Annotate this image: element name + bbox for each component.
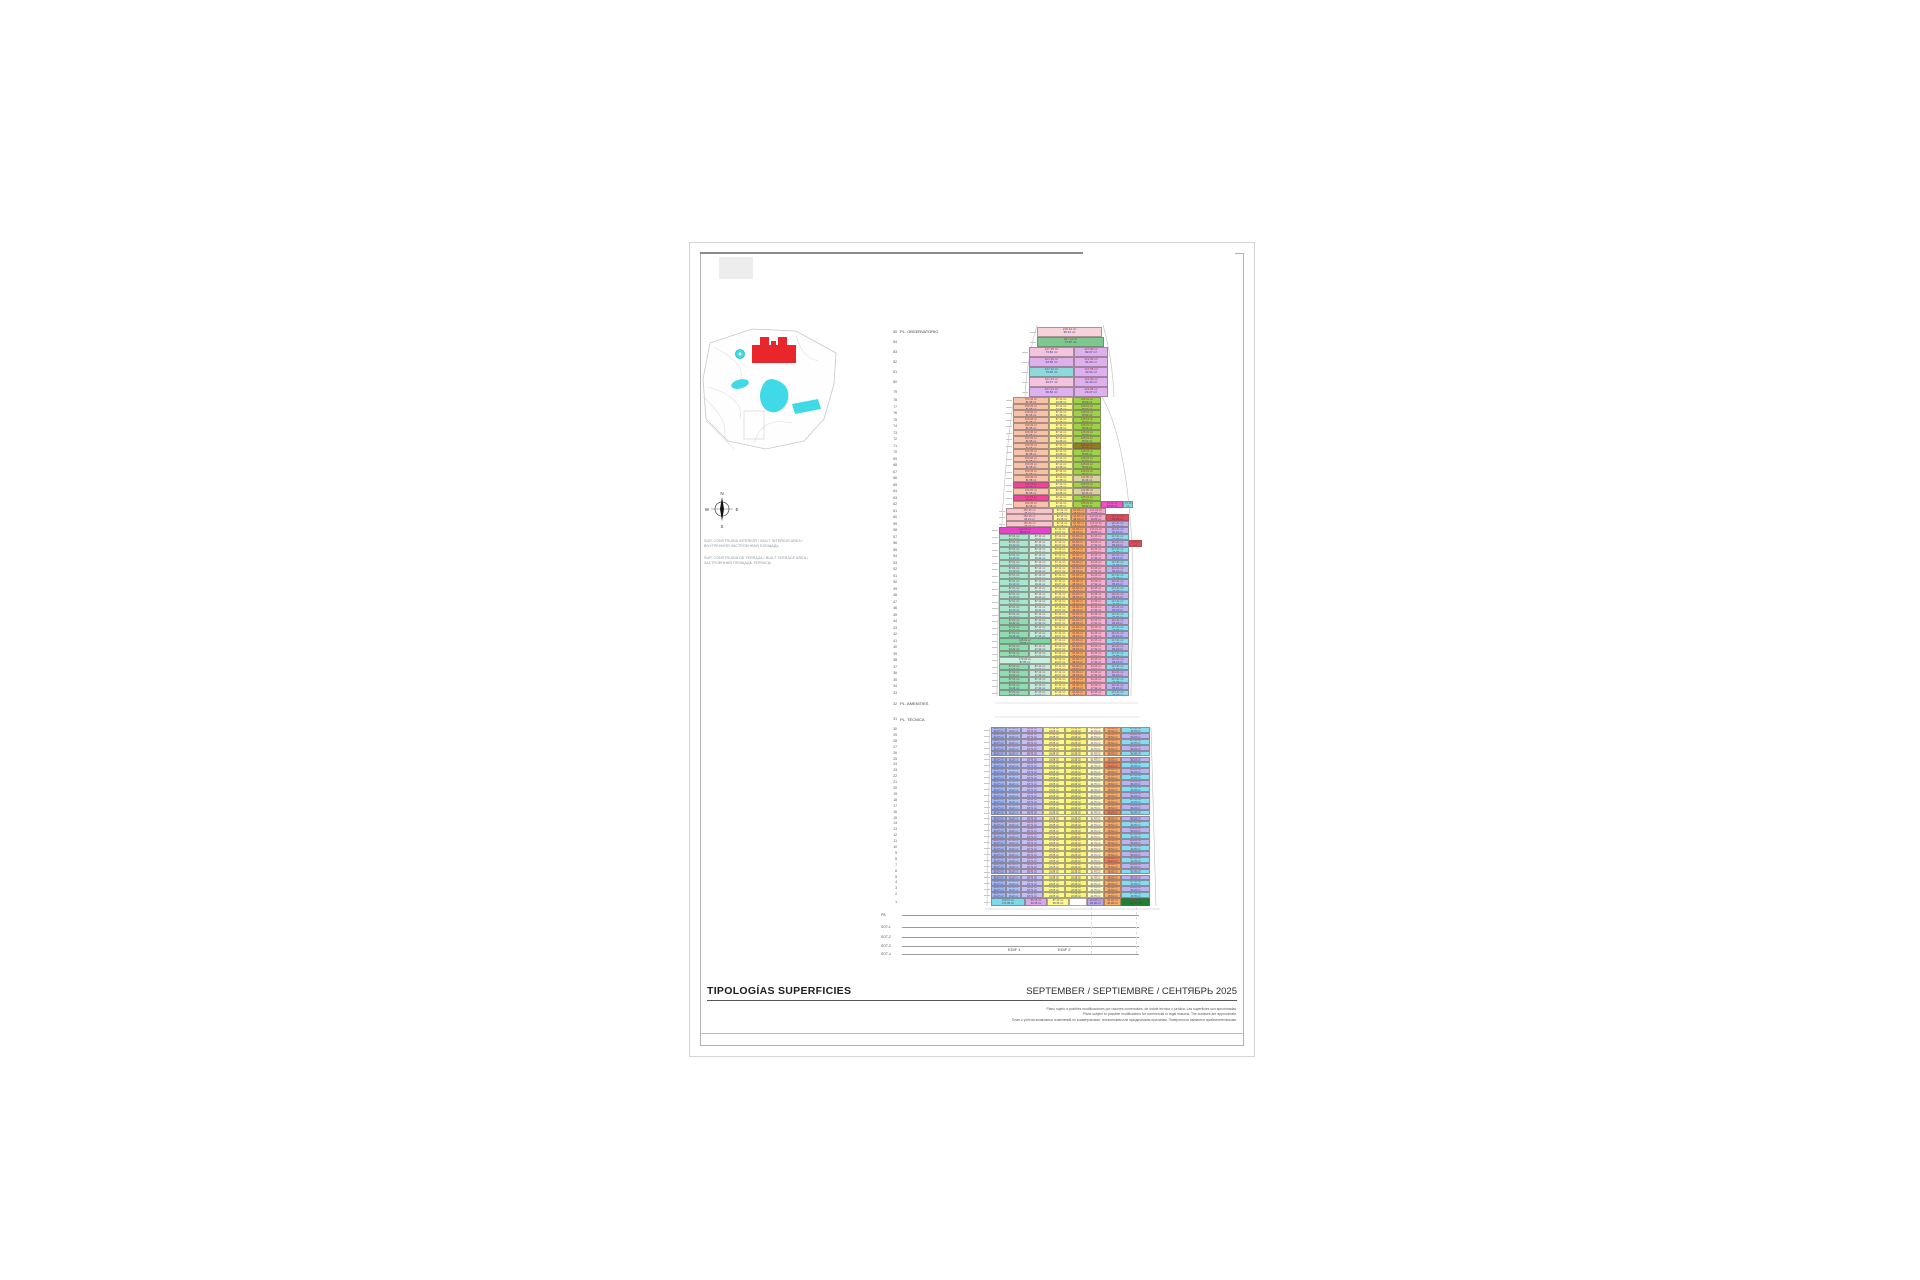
floor-tick-mark [1006, 433, 1012, 434]
floor-tick-mark [1006, 485, 1012, 486]
floor-row-31: 31PL. TÉCNICA [980, 712, 1210, 727]
floor-row-80: 80121.43 m²29.67 m²121.80 m²42.40 m² [980, 377, 1210, 387]
basement-guide-line [1136, 907, 1137, 954]
floor-tick-mark [1022, 392, 1028, 393]
floor-tick-mark [999, 511, 1005, 512]
basement-line-SOT-4 [902, 954, 1139, 955]
unit-cell: 88.14 m²102.35 m² [1121, 898, 1150, 906]
sheet-frame-top-rule [700, 252, 1110, 254]
terrace-area-value: 84.00 m² [1088, 902, 1103, 905]
floor-tick-mark [1006, 491, 1012, 492]
floor-number: 82 [885, 357, 897, 367]
floor-number: 31 [885, 712, 897, 727]
basement-line-SOT-1 [902, 927, 1139, 928]
floor-tick-mark [992, 634, 998, 635]
title-rule [707, 1000, 1237, 1001]
floor-tick-mark [1006, 472, 1012, 473]
floor-tick-mark [992, 654, 998, 655]
floor-tick-mark [984, 795, 990, 796]
unit-cell: 92.36 m²45.00 m² [1104, 898, 1121, 906]
floor-tick-mark [984, 818, 990, 819]
floor-number: 79 [885, 387, 897, 397]
floor-tick-mark [1006, 459, 1012, 460]
legend-terrace-area: SUP. CONSTRUIDA DE TERRAZA / BUILT TERRA… [704, 556, 822, 567]
floor-tick-mark [984, 783, 990, 784]
terrace-area-value: 171.05 m² [992, 902, 1024, 905]
floor-tick-mark [992, 615, 998, 616]
unit-cell: 127.45 m²73.84 m² [1029, 347, 1074, 357]
floor-tick-mark [992, 608, 998, 609]
terrace-area-value: 33.54 m² [1075, 371, 1107, 374]
unit-cell: 87.14 m²95.35 m² [1047, 898, 1069, 906]
floor-row-82: 82121.36 m²94.56 m²121.84 m²94.06 m² [980, 357, 1210, 367]
disclaimer-ru: План с учётом возможных изменений по ком… [907, 1018, 1237, 1023]
terrace-area-value: 82.07 m² [1075, 351, 1107, 354]
floor-tick-mark [999, 524, 1005, 525]
floor-tick-mark [1006, 452, 1012, 453]
floor-tick-mark [984, 807, 990, 808]
terrace-area-value: 94.06 m² [1075, 361, 1107, 364]
basement-line-SOT-2 [902, 937, 1139, 938]
sheet-canvas: N W E S SUP. CONSTRUIDA INTERIOR / BUILT… [0, 0, 1920, 1280]
floor-tick-mark [992, 563, 998, 564]
floor-row-79: 79127.21 m²96.82 m²121.86 m²29.27 m² [980, 387, 1210, 397]
terrace-area-value: 73.46 m² [1030, 371, 1073, 374]
floor-tick-mark [984, 830, 990, 831]
floor-tick-mark [999, 517, 1005, 518]
compass-needle [720, 497, 724, 521]
unit-cell: 121.43 m²29.67 m² [1029, 377, 1074, 387]
floor-tick-mark [984, 902, 990, 903]
floor-number: 84 [885, 337, 897, 347]
floor-number: 81 [885, 367, 897, 377]
floor-tick-mark [992, 673, 998, 674]
unit-cell: 121.86 m²29.27 m² [1074, 387, 1108, 397]
floor-number: 85 [885, 327, 897, 337]
floor-tick-mark [984, 730, 990, 731]
terrace-area-value: 77.67 m² [1038, 341, 1103, 344]
floor-number: 32 [885, 696, 897, 712]
floor-tick-mark [992, 569, 998, 570]
floor-tick-mark [1006, 465, 1012, 466]
sheet-date: SEPTEMBER / SEPTIEMBRE / СЕНТЯБРЬ 2025 [1026, 986, 1237, 997]
terrace-area-value: 29.27 m² [1075, 391, 1107, 394]
unit-cell: 127.21 m²96.82 m² [1029, 387, 1074, 397]
floor-tick-mark [1006, 478, 1012, 479]
top-right-mask [1083, 247, 1235, 270]
floor-tick-mark [1022, 382, 1028, 383]
floor-tick-mark [984, 854, 990, 855]
floor-tick-mark [984, 748, 990, 749]
unit-cell: 127.12 m²73.46 m² [1029, 367, 1074, 377]
floor-tick-mark [984, 895, 990, 896]
floor-tick-mark [984, 860, 990, 861]
floor-tick-mark [992, 693, 998, 694]
floor-tick-mark [992, 595, 998, 596]
floor-tick-mark [984, 824, 990, 825]
unit-cell: 218.14 m²95.12 m² [1037, 327, 1102, 337]
floor-name-label: PL. AMENITIES [900, 696, 928, 712]
floor-number: 80 [885, 377, 897, 387]
unit-cell: 227.14 m²77.67 m² [1037, 337, 1104, 347]
building-label: EDIF 2 [1058, 947, 1070, 952]
floor-row-1: 1143.67 m²171.05 m²85.36 m²90.35 m²87.14… [980, 898, 1210, 906]
floor-tick-mark [984, 801, 990, 802]
terrace-area-value: 96.82 m² [1030, 391, 1073, 394]
terrace-area-value: 73.84 m² [1030, 351, 1073, 354]
floor-tick-mark [992, 589, 998, 590]
floor-tick-mark [984, 889, 990, 890]
floor-tick-mark [1006, 498, 1012, 499]
floor-tick-mark [984, 813, 990, 814]
basement-label: SOT-4 [881, 952, 891, 956]
floor-tick-mark [992, 660, 998, 661]
floor-row-85: 85PL. OBSERVATORIO218.14 m²95.12 m² [980, 327, 1210, 337]
unit-cell: 131.06 m²84.00 m² [1087, 898, 1104, 906]
compass-south-label: S [720, 524, 723, 529]
floor-tick-mark [1006, 400, 1012, 401]
floor-tick-mark [1006, 426, 1012, 427]
floor-tick-mark [992, 576, 998, 577]
terrace-area-value: 45.00 m² [1105, 902, 1120, 905]
compass-rose: N W E S [704, 489, 740, 529]
floor-tick-mark [984, 789, 990, 790]
basement-guide-line [1091, 907, 1092, 954]
floor-tick-mark [1022, 352, 1028, 353]
floor-row-84: 84227.14 m²77.67 m² [980, 337, 1210, 347]
floor-tick-mark [1006, 413, 1012, 414]
floor-tick-mark [992, 647, 998, 648]
sheet-title: TIPOLOGÍAS SUPERFICIES [707, 985, 851, 997]
floor-tick-mark [992, 550, 998, 551]
basement-line-SOT-3 [902, 946, 1139, 947]
floor-tick-mark [984, 754, 990, 755]
floor-tick-mark [992, 621, 998, 622]
unit-cell [1069, 898, 1087, 906]
terrace-area-value: 95.35 m² [1048, 902, 1068, 905]
floor-tick-mark [1022, 372, 1028, 373]
unit-cell: 121.36 m²94.56 m² [1029, 357, 1074, 367]
floor-tick-mark [984, 842, 990, 843]
floor-tick-mark [992, 680, 998, 681]
floor-tick-mark [984, 765, 990, 766]
basement-label: SOT-3 [881, 944, 891, 948]
floor-tick-mark [992, 667, 998, 668]
floor-tick-mark [992, 582, 998, 583]
disclaimer-block: Plano sujeto a posibles modificaciones p… [907, 1007, 1237, 1023]
floor-tick-mark [992, 530, 998, 531]
floor-name-label: PL. TÉCNICA [900, 712, 925, 727]
floor-name-label: PL. OBSERVATORIO [900, 327, 938, 337]
floor-tick-mark [992, 602, 998, 603]
terrace-area-value: 95.12 m² [1038, 331, 1101, 334]
floor-tick-mark [992, 556, 998, 557]
unit-cell: 85.36 m²90.35 m² [1025, 898, 1047, 906]
terrace-area-value: 42.40 m² [1075, 381, 1107, 384]
floor-tick-mark [1006, 504, 1012, 505]
terrace-area-value: 90.35 m² [1026, 902, 1046, 905]
floor-tick-mark [984, 771, 990, 772]
site-plan-map [700, 327, 842, 454]
legend-interior-area: SUP. CONSTRUIDA INTERIOR / BUILT INTERIO… [704, 539, 822, 550]
drawing-sheet: N W E S SUP. CONSTRUIDA INTERIOR / BUILT… [689, 242, 1255, 1057]
unit-cell: 127.80 m²82.07 m² [1074, 347, 1108, 357]
tower-stacking-diagram: 85PL. OBSERVATORIO218.14 m²95.12 m²84227… [980, 321, 1210, 921]
floor-tick-mark [984, 872, 990, 873]
fountain-center [739, 353, 742, 356]
compass-east-label: E [735, 507, 738, 512]
floor-row-32: 32PL. AMENITIES [980, 696, 1210, 712]
bottom-rule [700, 1033, 1244, 1034]
floor-tick-mark [992, 543, 998, 544]
floor-tick-mark [984, 866, 990, 867]
floor-tick-mark [992, 686, 998, 687]
compass-west-label: W [705, 507, 710, 512]
floor-number: 1 [885, 898, 897, 906]
floor-tick-mark [1006, 439, 1012, 440]
floor-tick-mark [984, 759, 990, 760]
floor-tick-mark [984, 848, 990, 849]
building-label: EDIF 1 [1008, 947, 1020, 952]
unit-cell: 121.86 m²33.54 m² [1074, 367, 1108, 377]
floor-tick-mark [1022, 362, 1028, 363]
basement-line-PB [902, 915, 1139, 916]
floor-tick-mark [1030, 332, 1036, 333]
floor-tick-mark [1006, 420, 1012, 421]
terrace-area-value: 102.35 m² [1122, 902, 1149, 905]
terrace-area-value: 94.56 m² [1030, 361, 1073, 364]
floor-tick-mark [1030, 342, 1036, 343]
floor-tick-mark [992, 641, 998, 642]
unit-cell: 143.67 m²171.05 m² [991, 898, 1025, 906]
floor-tick-mark [992, 537, 998, 538]
basement-label: PB [881, 913, 886, 917]
unit-cell: 121.84 m²94.06 m² [1074, 357, 1108, 367]
floor-tick-mark [984, 877, 990, 878]
floor-tick-mark [1006, 446, 1012, 447]
compass-north-label: N [720, 491, 723, 496]
floor-tick-mark [984, 836, 990, 837]
basement-label: SOT-1 [881, 925, 891, 929]
floor-tick-mark [1006, 407, 1012, 408]
basement-label: SOT-2 [881, 935, 891, 939]
floor-tick-mark [984, 736, 990, 737]
terrace-area-value: 29.67 m² [1030, 381, 1073, 384]
logo-placeholder [719, 257, 753, 279]
floor-tick-mark [984, 883, 990, 884]
floor-tick-mark [984, 742, 990, 743]
floor-number: 83 [885, 347, 897, 357]
floor-row-81: 81127.12 m²73.46 m²121.86 m²33.54 m² [980, 367, 1210, 377]
area-legend: SUP. CONSTRUIDA INTERIOR / BUILT INTERIO… [704, 539, 822, 573]
floor-tick-mark [992, 628, 998, 629]
unit-cell: 121.80 m²42.40 m² [1074, 377, 1108, 387]
floor-row-83: 83127.45 m²73.84 m²127.80 m²82.07 m² [980, 347, 1210, 357]
floor-tick-mark [984, 777, 990, 778]
